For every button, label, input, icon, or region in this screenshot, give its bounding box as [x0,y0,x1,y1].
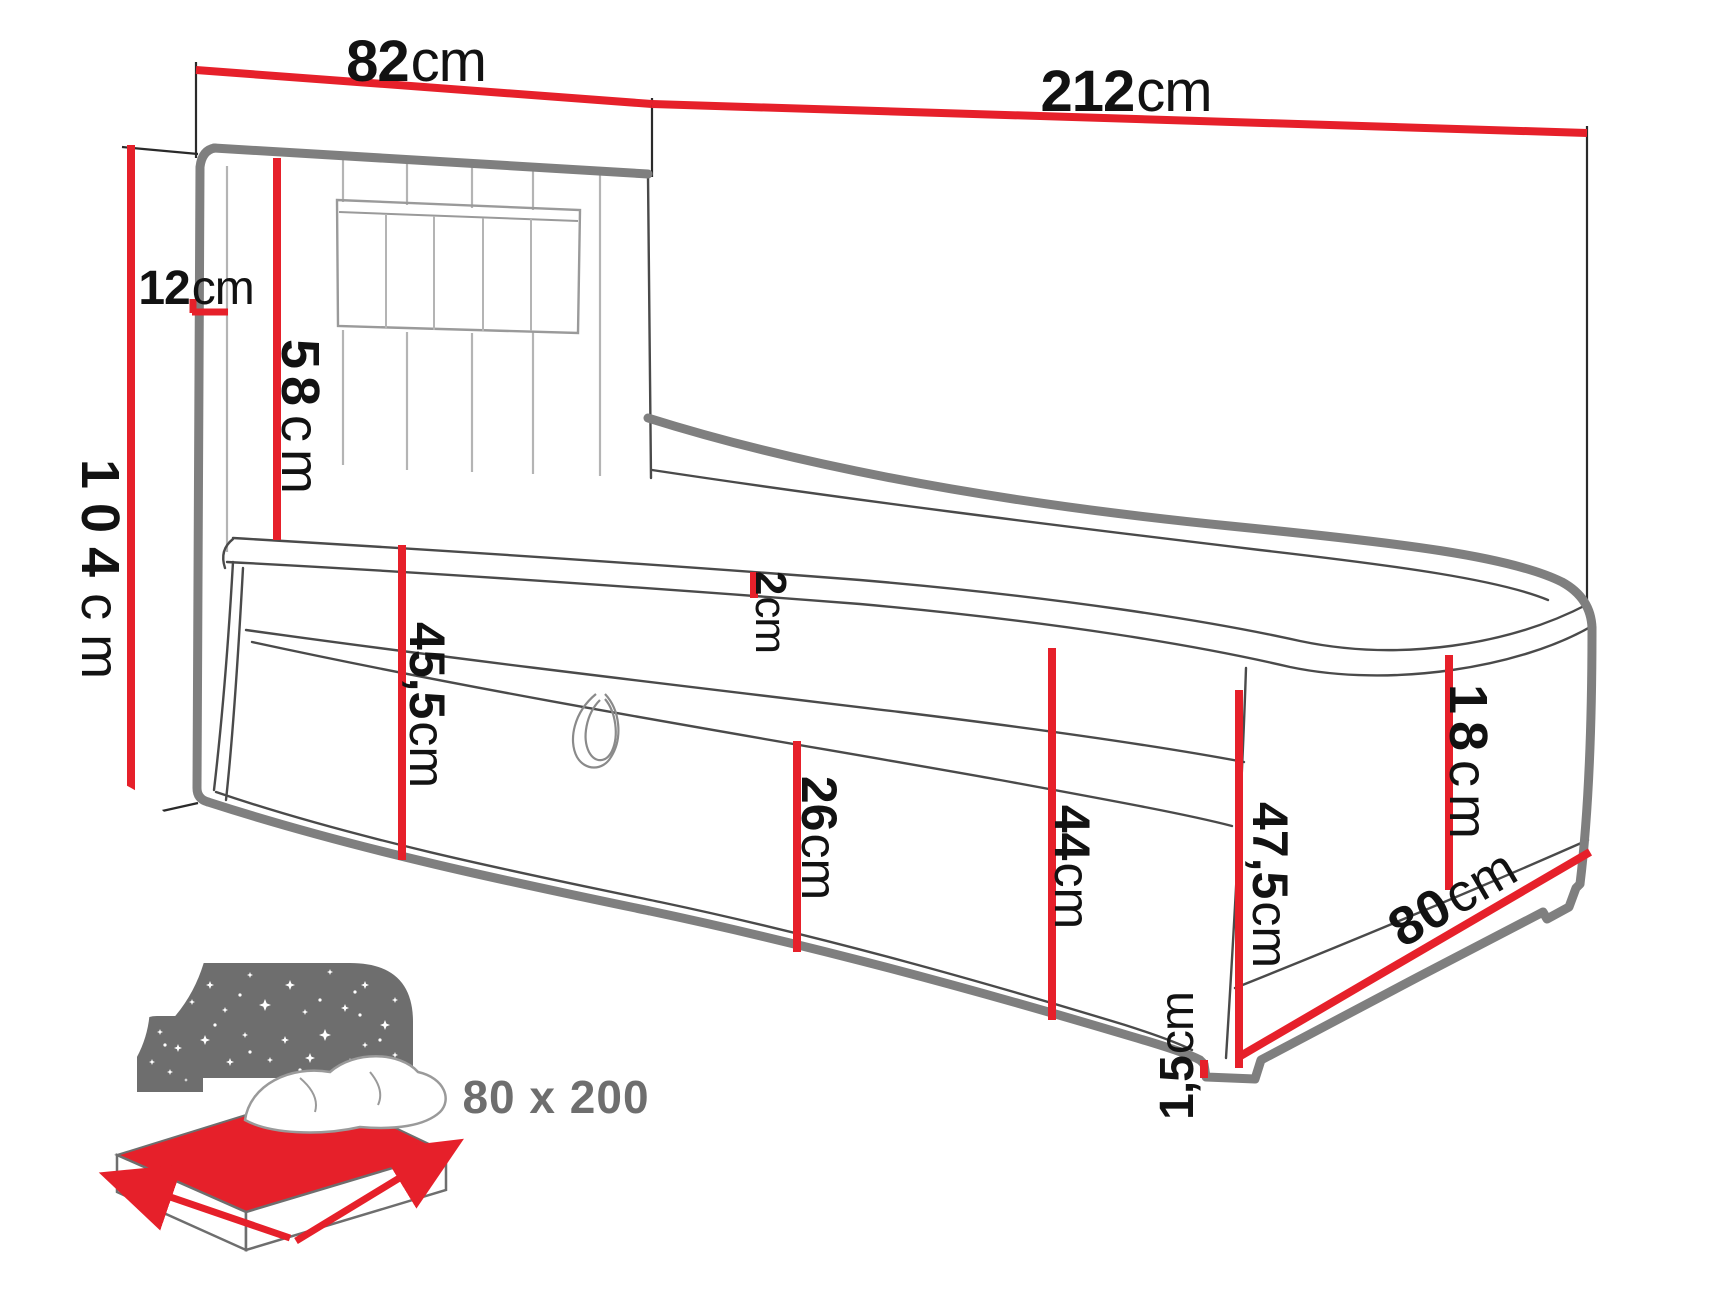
dim-label-side-height-head-end: 45,5 cm [402,622,452,788]
dim-unit: cm [273,415,327,501]
dim-value: 47,5 [1245,802,1295,899]
dim-unit: cm [1136,63,1211,121]
dim-unit: cm [1441,760,1495,846]
star-dot-icon [378,1038,381,1041]
headboard-left-edge [197,148,215,802]
dim-unit: cm [1047,862,1097,929]
bed-dimension-diagram: 82 cm 212 cm 104 cm 12 cm 58 cm 2 cm 45,… [0,0,1726,1295]
dim-unit: cm [748,596,792,653]
dim-label-storage-box-height: 26 cm [794,776,844,900]
dim-label-leg-height: 1,5 cm [1154,992,1202,1120]
storage-handle [573,694,618,768]
dim-label-foot-end-height: 47,5 cm [1245,802,1295,968]
dim-value: 26 [794,776,844,832]
dim-value: 12 [138,265,189,313]
star-dot-icon [213,1023,216,1026]
dim-unit: cm [1245,901,1295,968]
left-face-edge-b [226,568,243,800]
star-dot-icon [238,993,241,996]
bed-thin-outline [214,176,1592,1058]
bed-bottom-edge-with-legs [208,802,1580,1079]
dim-value: 45,5 [402,622,452,719]
dim-label-mattress-lip: 2 cm [748,571,792,653]
dim-label-headboard-face-height: 58 cm [273,339,327,501]
dim-unit: cm [794,833,844,900]
dim-value: 18 [1441,684,1495,758]
dim-value: 44 [1047,805,1097,861]
bed-thick-outline [197,148,1592,1079]
headboard-right-edge [648,176,651,478]
line-art-canvas [0,0,1726,1295]
dim-label-headboard-width: 82 cm [346,33,486,91]
dim-unit: cm [402,721,452,788]
dim-value: 1,5 [1154,1056,1202,1120]
dim-value: 82 [346,33,409,91]
dim-unit: cm [1154,992,1202,1054]
star-dot-icon [358,1013,361,1016]
dim-unit: cm [411,33,486,91]
star-dot-icon [163,1043,166,1046]
dim-value: 58 [273,339,327,413]
headboard-panel [337,200,580,333]
dim-unit: cm [192,265,254,313]
bed-drawing [197,148,1592,1079]
star-dot-icon [248,1050,251,1053]
dim-label-total-height: 104 cm [73,459,127,693]
deck-left-nose [223,539,233,568]
dim-unit: cm [73,593,127,693]
dim-value: 212 [1040,63,1134,121]
dim-value: 2 [748,571,792,594]
bed-right-silhouette [1580,628,1592,884]
storage-lid-seam [246,630,1244,762]
star-dot-icon [318,998,321,1001]
size-badge-label: 80 x 200 [462,1070,649,1124]
dim-value: 104 [73,459,127,591]
dim-label-total-length: 212 cm [1040,63,1211,121]
dim-label-mattress-height: 18 cm [1441,684,1495,846]
star-dot-icon [353,990,356,993]
dimension-lines [131,70,1590,1078]
dim-label-front-height-mid: 44 cm [1047,805,1097,929]
extension-lines [122,62,1587,818]
dim-label-headboard-depth: 12 cm [138,265,253,313]
